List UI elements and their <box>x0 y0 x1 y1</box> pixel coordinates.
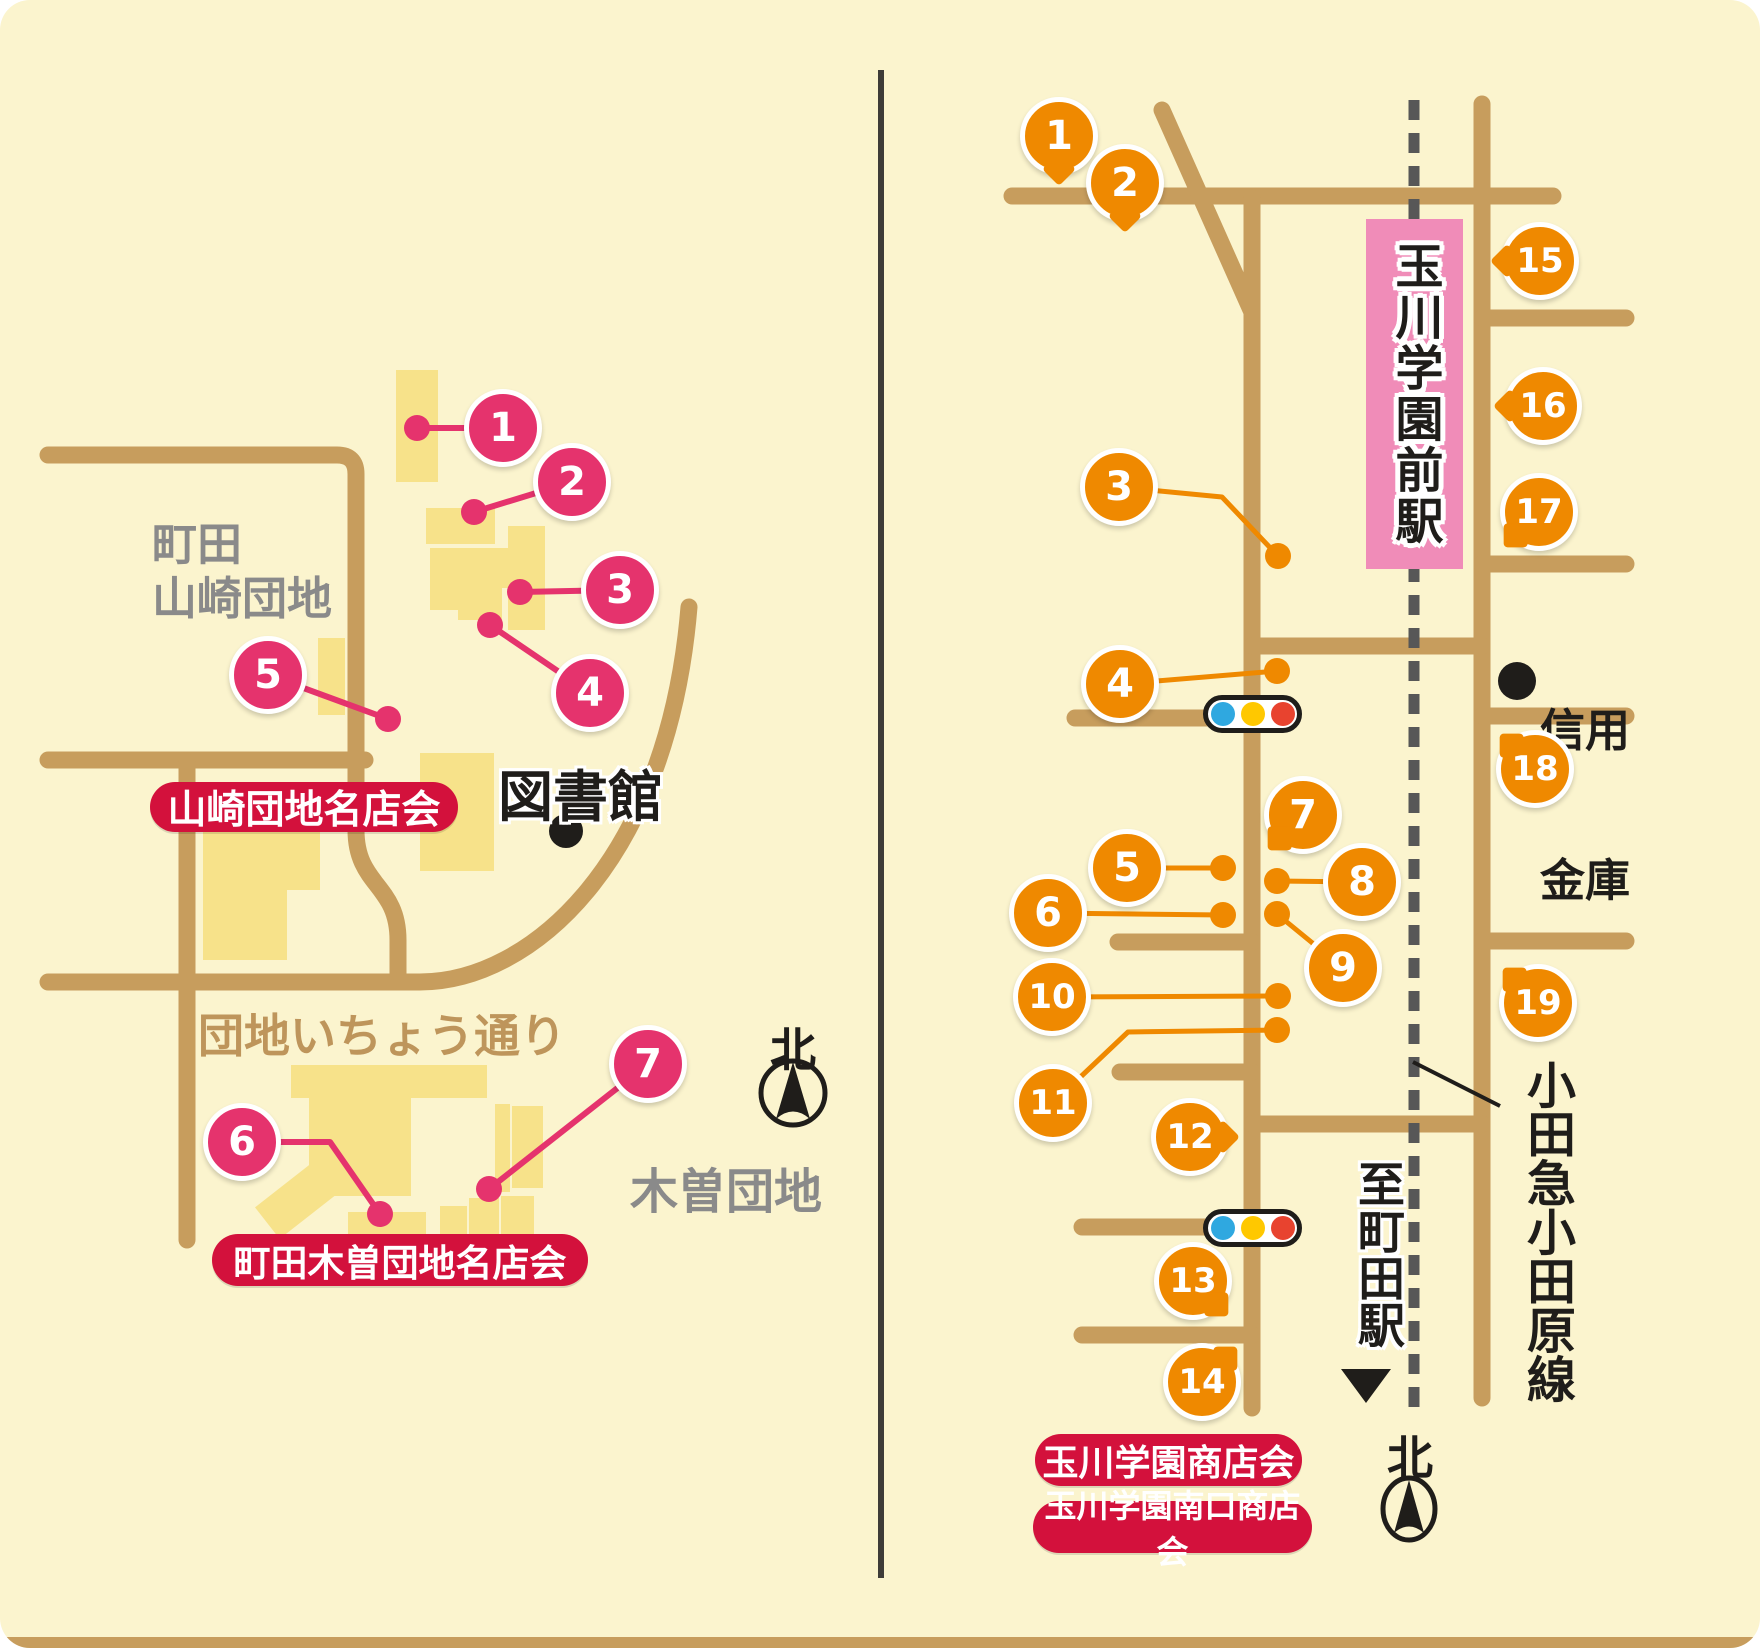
map-marker-right-number-16: 16 <box>1519 389 1566 423</box>
card-bottom-edge <box>0 1637 1760 1648</box>
to-machida-arrow-icon <box>1341 1369 1391 1403</box>
map-marker-right-17: 17 <box>1500 473 1578 551</box>
map-marker-right-15: 15 <box>1501 222 1579 300</box>
bank-label-line2: 金庫 <box>1540 856 1630 906</box>
signal-blue-light <box>1211 702 1235 726</box>
map-card: 玉川学園前駅 町田 山崎団地 図書館 山崎団地名店会 団地いちょう通り 木曽団地… <box>0 0 1760 1648</box>
map-marker-right-dot-6 <box>1210 902 1236 928</box>
signal-red-light <box>1271 1216 1295 1240</box>
map-marker-left-dot-6 <box>367 1201 393 1227</box>
tamagawa-south-badge-label: 玉川学園南口商店会 <box>1033 1481 1312 1573</box>
map-marker-right-7: 7 <box>1264 776 1342 854</box>
map-marker-right-10: 10 <box>1013 958 1091 1036</box>
map-marker-right-number-18: 18 <box>1511 752 1558 786</box>
bank-dot <box>1498 662 1536 700</box>
compass-right-label: 北 <box>1387 1422 1433 1488</box>
map-marker-left-number-6: 6 <box>228 1122 256 1162</box>
map-marker-right-number-7: 7 <box>1289 795 1317 835</box>
map-marker-left-dot-4 <box>477 612 503 638</box>
map-marker-right-number-13: 13 <box>1169 1264 1216 1298</box>
map-marker-right-number-19: 19 <box>1514 986 1561 1020</box>
map-marker-right-dot-10 <box>1265 983 1291 1009</box>
map-marker-right-number-11: 11 <box>1029 1086 1076 1120</box>
map-marker-left-4: 4 <box>551 654 629 732</box>
map-marker-right-number-8: 8 <box>1348 862 1376 902</box>
district-label: 町田 山崎団地 <box>152 518 332 626</box>
map-marker-right-16: 16 <box>1504 367 1582 445</box>
map-marker-left-2: 2 <box>533 443 611 521</box>
map-marker-right-19: 19 <box>1499 964 1577 1042</box>
map-marker-right-14: 14 <box>1163 1343 1241 1421</box>
map-marker-right-number-3: 3 <box>1105 467 1133 507</box>
map-marker-left-dot-2 <box>461 499 487 525</box>
map-marker-right-dot-8 <box>1264 868 1290 894</box>
district-label-line2: 山崎団地 <box>152 572 332 626</box>
map-marker-right-number-14: 14 <box>1178 1365 1225 1399</box>
tamagawa-south-badge: 玉川学園南口商店会 <box>1033 1501 1312 1553</box>
map-marker-right-11: 11 <box>1014 1064 1092 1142</box>
signal-blue-light <box>1211 1216 1235 1240</box>
map-marker-right-8: 8 <box>1323 843 1401 921</box>
street-label: 団地いちょう通り <box>198 1000 566 1066</box>
map-marker-right-18: 18 <box>1496 730 1574 808</box>
map-marker-right-number-4: 4 <box>1106 664 1134 704</box>
map-marker-left-dot-5 <box>375 706 401 732</box>
map-marker-left-number-3: 3 <box>606 570 634 610</box>
map-marker-right-number-6: 6 <box>1034 893 1062 933</box>
signal-yellow-light <box>1241 1216 1265 1240</box>
map-marker-left-dot-3 <box>507 579 533 605</box>
bank-label: 信用 金庫 <box>1540 606 1630 1006</box>
map-marker-right-dot-11 <box>1264 1017 1290 1043</box>
map-marker-right-dot-3 <box>1265 543 1291 569</box>
map-marker-left-dot-7 <box>476 1176 502 1202</box>
station-label: 玉川学園前駅 <box>1380 241 1450 547</box>
map-marker-right-6: 6 <box>1009 874 1087 952</box>
map-marker-right-2: 2 <box>1086 144 1164 222</box>
map-marker-right-number-9: 9 <box>1329 948 1357 988</box>
kiso-district-label: 木曽団地 <box>630 1152 822 1222</box>
kiso-badge: 町田木曽団地名店会 <box>212 1234 588 1286</box>
map-marker-left-number-5: 5 <box>254 655 282 695</box>
map-marker-left-5: 5 <box>229 636 307 714</box>
yamazaki-badge-label: 山崎団地名店会 <box>167 779 440 835</box>
map-marker-right-9: 9 <box>1304 929 1382 1007</box>
map-marker-left-7: 7 <box>609 1025 687 1103</box>
map-marker-right-dot-9 <box>1264 901 1290 927</box>
map-marker-right-dot-4 <box>1264 658 1290 684</box>
to-machida-label: 至町田駅 <box>1342 1160 1411 1348</box>
map-marker-right-1: 1 <box>1020 97 1098 175</box>
district-label-line1: 町田 <box>152 518 332 572</box>
panel-divider <box>878 70 884 1578</box>
map-marker-left-3: 3 <box>581 551 659 629</box>
map-marker-right-dot-5 <box>1210 855 1236 881</box>
signal-yellow-light <box>1241 702 1265 726</box>
station-box: 玉川学園前駅 <box>1366 219 1463 569</box>
map-marker-right-tail-7 <box>1268 826 1292 850</box>
map-marker-left-number-2: 2 <box>558 462 586 502</box>
map-marker-right-4: 4 <box>1081 645 1159 723</box>
map-marker-left-1: 1 <box>464 389 542 467</box>
map-marker-right-number-17: 17 <box>1515 495 1562 529</box>
map-marker-right-3: 3 <box>1080 448 1158 526</box>
map-marker-right-number-12: 12 <box>1166 1120 1213 1154</box>
map-marker-right-13: 13 <box>1154 1242 1232 1320</box>
map-marker-left-number-4: 4 <box>576 673 604 713</box>
map-marker-left-number-7: 7 <box>634 1044 662 1084</box>
tamagawa-badge: 玉川学園商店会 <box>1035 1434 1302 1486</box>
map-marker-left-number-1: 1 <box>489 408 517 448</box>
tamagawa-badge-label: 玉川学園商店会 <box>1042 1434 1294 1486</box>
signal-red-light <box>1271 702 1295 726</box>
traffic-light-lower <box>1203 1209 1302 1247</box>
compass-left-label: 北 <box>770 1014 816 1080</box>
library-label: 図書館 <box>498 752 663 832</box>
map-marker-right-number-10: 10 <box>1028 980 1075 1014</box>
map-marker-right-number-1: 1 <box>1045 116 1073 156</box>
map-marker-left-dot-1 <box>404 415 430 441</box>
map-marker-left-6: 6 <box>203 1103 281 1181</box>
map-marker-right-number-5: 5 <box>1113 848 1141 888</box>
railway-label: 小田急小田原線 <box>1512 1060 1583 1403</box>
map-marker-right-number-2: 2 <box>1111 163 1139 203</box>
map-marker-right-5: 5 <box>1088 829 1166 907</box>
traffic-light-upper <box>1203 695 1302 733</box>
map-marker-right-number-15: 15 <box>1516 244 1563 278</box>
map-marker-right-12: 12 <box>1151 1098 1229 1176</box>
kiso-badge-label: 町田木曽団地名店会 <box>234 1233 567 1287</box>
yamazaki-badge: 山崎団地名店会 <box>150 782 458 832</box>
